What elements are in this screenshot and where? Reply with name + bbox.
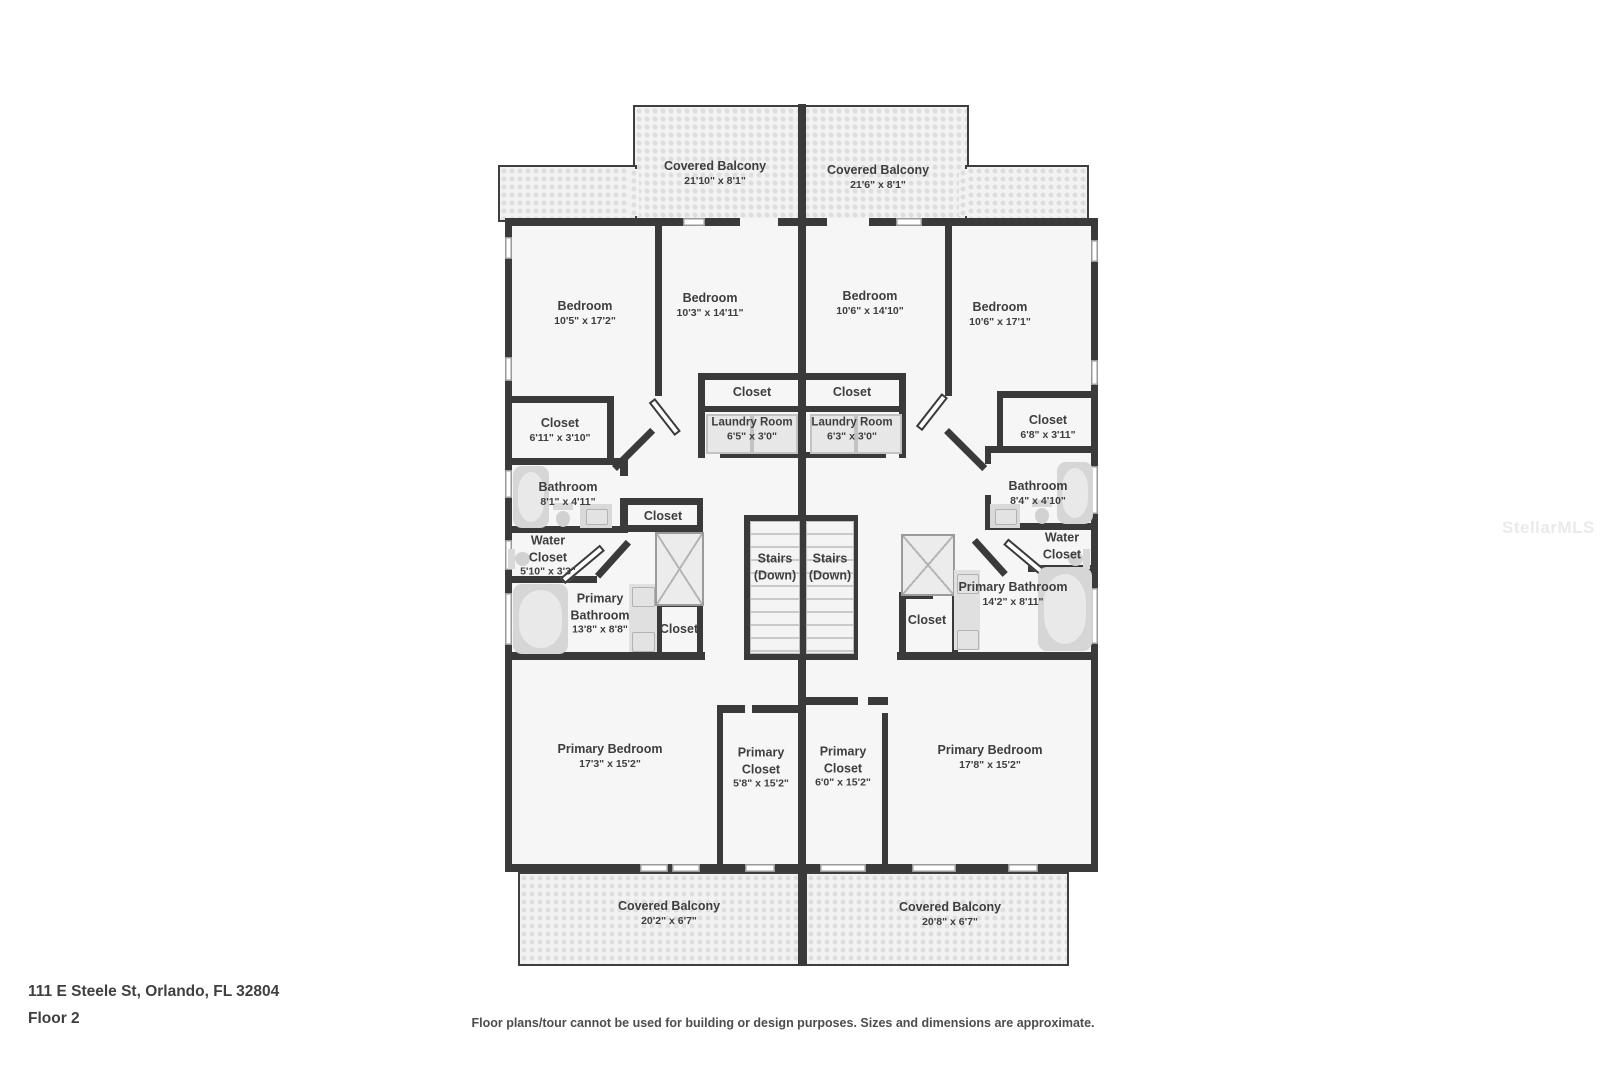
- wall: [1091, 218, 1098, 872]
- wall: [717, 705, 745, 713]
- room-label-primary-bedroom-left: Primary Bedroom17'3" x 15'2": [558, 741, 663, 771]
- room-label-primary-bedroom-right: Primary Bedroom17'8" x 15'2": [938, 742, 1043, 772]
- wall: [505, 396, 614, 403]
- window: [896, 218, 922, 226]
- door-opening: [827, 218, 869, 226]
- floor-plan: Covered Balcony21'10" x 8'1" Covered Bal…: [0, 0, 1600, 1066]
- window: [1091, 360, 1098, 385]
- shower: [655, 532, 704, 606]
- address-text: 111 E Steele St, Orlando, FL 32804: [28, 983, 279, 1001]
- wall: [627, 525, 703, 532]
- room-label-closet-pb-right: Closet: [908, 612, 946, 629]
- wall: [717, 713, 723, 864]
- room-label-laundry-left: Laundry Room6'5" x 3'0": [711, 415, 792, 444]
- room-label-balcony-bottom-left: Covered Balcony20'2" x 6'7": [618, 898, 720, 928]
- window: [1008, 864, 1038, 872]
- room-label-bedroom-3: Bedroom10'6" x 14'10": [836, 288, 904, 318]
- room-label-closet-hall-left: Closet: [644, 508, 682, 525]
- disclaimer-text: Floor plans/tour cannot be used for buil…: [0, 1016, 1566, 1030]
- balcony-top-right-wing: [965, 165, 1089, 222]
- wall: [806, 406, 906, 412]
- room-label-closet-right: Closet6'8" x 3'11": [1020, 412, 1075, 442]
- room-label-closet-center-right: Closet: [833, 384, 871, 401]
- room-label-water-closet-right: Water Closet: [1032, 530, 1092, 563]
- window: [1091, 240, 1098, 262]
- wall: [997, 391, 1003, 453]
- stairs-right: [806, 521, 854, 654]
- door-opening: [740, 218, 778, 226]
- room-label-primary-bathroom-right: Primary Bathroom14'2" x 8'11": [958, 579, 1067, 609]
- window: [912, 864, 956, 872]
- wall: [698, 373, 798, 380]
- wall: [806, 373, 906, 380]
- window: [745, 864, 775, 872]
- room-label-primary-closet-right: Primary Closet6'0" x 15'2": [808, 744, 878, 791]
- wall: [655, 226, 662, 396]
- wall: [698, 373, 705, 458]
- room-label-balcony-top-left: Covered Balcony21'10" x 8'1": [664, 158, 766, 188]
- stairs-left: [750, 521, 800, 654]
- wall: [607, 396, 614, 465]
- room-label-water-closet-left: Water Closet5'10" x 3'3": [515, 533, 581, 580]
- balcony-seam: [959, 169, 968, 216]
- watermark: StellarMLS: [1502, 518, 1595, 538]
- wall: [752, 705, 798, 713]
- wall: [997, 391, 1098, 398]
- room-label-laundry-right: Laundry Room6'3" x 3'0": [811, 415, 892, 444]
- wall: [882, 713, 888, 864]
- window: [505, 237, 512, 259]
- window: [640, 864, 668, 872]
- floor-plan-page: { "watermark": "StellarMLS", "footer": {…: [0, 0, 1600, 1066]
- room-label-stairs-right: Stairs(Down): [809, 551, 851, 584]
- window: [683, 218, 705, 226]
- wall: [868, 697, 888, 705]
- room-label-primary-closet-left: Primary Closet5'8" x 15'2": [726, 745, 796, 792]
- window: [1091, 588, 1098, 644]
- room-label-bathroom-right: Bathroom8'4" x 4'10": [1008, 478, 1067, 508]
- sink: [957, 630, 979, 650]
- window: [505, 470, 512, 498]
- room-label-bedroom-1: Bedroom10'5" x 17'2": [554, 298, 616, 328]
- shower: [901, 534, 955, 596]
- room-label-closet-left: Closet6'11" x 3'10": [529, 415, 590, 445]
- wall: [505, 458, 628, 465]
- balcony-seam: [630, 169, 639, 216]
- window: [505, 357, 512, 381]
- window: [820, 864, 866, 872]
- window: [672, 864, 700, 872]
- wall: [806, 697, 858, 705]
- balcony-top-left-wing: [498, 165, 637, 222]
- toilet: [508, 549, 515, 569]
- room-label-primary-bathroom-left: Primary Bathroom13'8" x 8'8": [558, 591, 642, 638]
- wall: [899, 592, 906, 652]
- room-label-closet-pb-left: Closet: [660, 621, 698, 638]
- room-label-bedroom-2: Bedroom10'3" x 14'11": [677, 290, 744, 320]
- sink: [586, 509, 608, 525]
- wall: [945, 226, 952, 396]
- room-label-closet-center-left: Closet: [733, 384, 771, 401]
- wall: [985, 446, 991, 464]
- room-label-balcony-top-right: Covered Balcony21'6" x 8'1": [827, 162, 929, 192]
- window: [505, 593, 512, 645]
- wall: [698, 406, 798, 412]
- room-label-balcony-bottom-right: Covered Balcony20'8" x 6'7": [899, 899, 1001, 929]
- room-label-bedroom-4: Bedroom10'6" x 17'1": [969, 299, 1031, 329]
- room-label-stairs-left: Stairs(Down): [754, 551, 796, 584]
- wall: [985, 446, 1098, 453]
- wall: [627, 498, 703, 505]
- sink: [995, 509, 1017, 525]
- room-label-bathroom-left: Bathroom8'1" x 4'11": [538, 479, 597, 509]
- wall: [897, 652, 1098, 660]
